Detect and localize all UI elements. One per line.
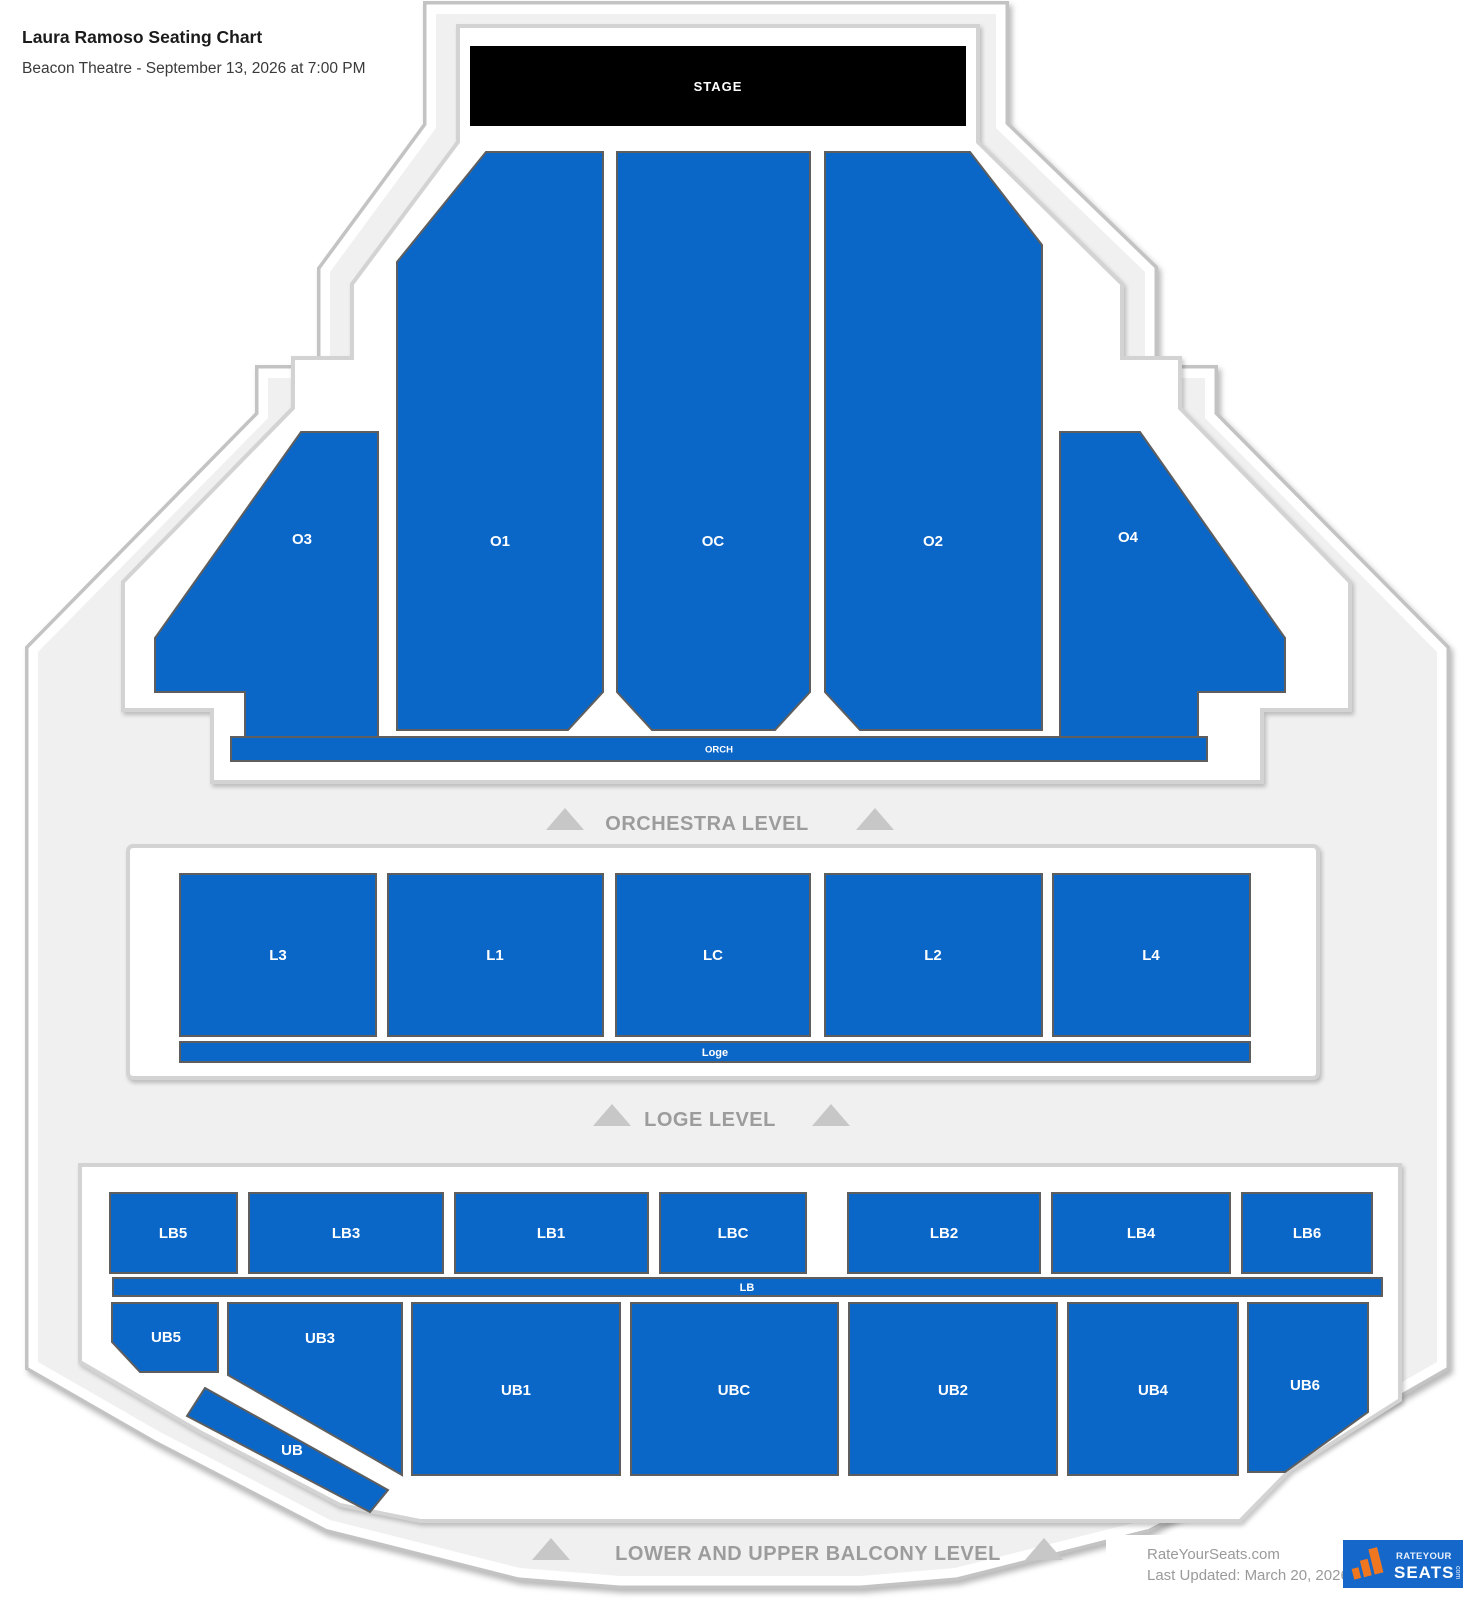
section-label: O1	[490, 533, 510, 550]
section-lb2[interactable]: LB2	[848, 1193, 1040, 1273]
footer-site: RateYourSeats.com	[1147, 1546, 1280, 1563]
stage-label: STAGE	[694, 79, 743, 94]
section-lbc[interactable]: LBC	[660, 1193, 806, 1273]
section-label: LB1	[537, 1225, 565, 1242]
section-l2[interactable]: L2	[825, 874, 1042, 1036]
section-label: UB5	[151, 1329, 181, 1346]
section-lb1[interactable]: LB1	[455, 1193, 648, 1273]
section-label: UB2	[938, 1382, 968, 1399]
section-label: LB5	[159, 1225, 187, 1242]
logo-text-main: SEATS	[1394, 1563, 1454, 1582]
loge-container: L3 L1 LC L2 L4 Loge	[128, 846, 1318, 1078]
logo-text-suffix: com	[1454, 1566, 1461, 1579]
section-l1[interactable]: L1	[388, 874, 603, 1036]
section-oc[interactable]: OC	[617, 152, 810, 730]
section-label: LB6	[1293, 1225, 1321, 1242]
section-label: L4	[1142, 947, 1160, 964]
page-title: Laura Ramoso Seating Chart	[22, 27, 262, 47]
section-label: O4	[1118, 529, 1139, 546]
section-l3[interactable]: L3	[180, 874, 376, 1036]
banner-label: ORCHESTRA LEVEL	[605, 813, 808, 835]
section-ub4[interactable]: UB4	[1068, 1303, 1238, 1475]
section-label: UBC	[718, 1382, 751, 1399]
section-label: LB3	[332, 1225, 360, 1242]
section-label: LB4	[1127, 1225, 1156, 1242]
section-lb5[interactable]: LB5	[110, 1193, 237, 1273]
section-shape	[617, 152, 810, 730]
page-subtitle: Beacon Theatre - September 13, 2026 at 7…	[22, 60, 366, 77]
aisle-bar-label: ORCH	[705, 745, 733, 756]
section-label: UB6	[1290, 1377, 1320, 1394]
orchestra-container: STAGE O3 O1 OC O2 O4 ORCH	[123, 26, 1350, 782]
section-label: OC	[702, 533, 725, 550]
section-o2[interactable]: O2	[825, 152, 1042, 730]
section-label: UB4	[1138, 1382, 1169, 1399]
section-label: UB1	[501, 1382, 531, 1399]
aisle-bar-loge[interactable]: Loge	[180, 1042, 1250, 1062]
section-label: LC	[703, 947, 723, 964]
section-ub2[interactable]: UB2	[849, 1303, 1057, 1475]
chart-header: Laura Ramoso Seating Chart Beacon Theatr…	[22, 27, 366, 77]
banner-label: LOWER AND UPPER BALCONY LEVEL	[615, 1543, 1001, 1565]
section-ubc[interactable]: UBC	[631, 1303, 838, 1475]
stage: STAGE	[470, 46, 966, 126]
section-label: O2	[923, 533, 943, 550]
aisle-bar-lb[interactable]: LB	[113, 1278, 1382, 1296]
section-o1[interactable]: O1	[397, 152, 603, 730]
section-lb4[interactable]: LB4	[1052, 1193, 1230, 1273]
aisle-bar-orch[interactable]: ORCH	[231, 737, 1207, 761]
section-ub6[interactable]: UB6	[1248, 1303, 1368, 1472]
aisle-bar-label: UB	[281, 1442, 303, 1459]
section-shape	[397, 152, 603, 730]
section-label: L2	[924, 947, 942, 964]
section-label: UB3	[305, 1330, 335, 1347]
section-lc[interactable]: LC	[616, 874, 810, 1036]
aisle-bar-label: Loge	[702, 1047, 728, 1059]
footer-credit: RateYourSeats.com Last Updated: March 20…	[1106, 1535, 1464, 1591]
section-label: L3	[269, 947, 287, 964]
banner-label: LOGE LEVEL	[644, 1109, 776, 1131]
section-lb3[interactable]: LB3	[249, 1193, 443, 1273]
rateyourseats-logo[interactable]: RATEYOUR SEATS com	[1343, 1540, 1463, 1588]
balcony-container: LB5 LB3 LB1 LBC LB2 LB4 LB6 LB	[80, 1165, 1400, 1521]
section-label: L1	[486, 947, 504, 964]
section-label: LB2	[930, 1225, 958, 1242]
aisle-bar-label: LB	[740, 1282, 755, 1294]
section-label: LBC	[718, 1225, 749, 1242]
section-shape	[825, 152, 1042, 730]
logo-text-top: RATEYOUR	[1396, 1551, 1452, 1562]
section-ub1[interactable]: UB1	[412, 1303, 620, 1475]
section-lb6[interactable]: LB6	[1242, 1193, 1372, 1273]
section-l4[interactable]: L4	[1053, 874, 1250, 1036]
section-label: O3	[292, 531, 312, 548]
seating-chart-page: STAGE O3 O1 OC O2 O4 ORCH ORCHES	[0, 0, 1473, 1600]
footer-updated: Last Updated: March 20, 2026	[1147, 1567, 1349, 1584]
seating-chart-canvas: STAGE O3 O1 OC O2 O4 ORCH ORCHES	[0, 0, 1473, 1600]
